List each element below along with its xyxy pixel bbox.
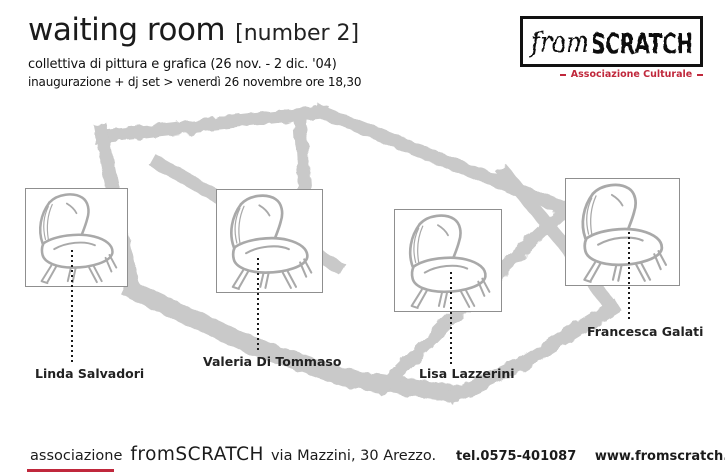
title-number: [number 2] (235, 21, 359, 46)
footer-phone: tel.0575-401087 (456, 449, 576, 464)
artist-label-4: Francesca Galati (587, 324, 703, 339)
chair-frame-1 (25, 188, 128, 287)
chair-icon (395, 210, 501, 311)
opening-info: inaugurazione + dj set > venerdì 26 nove… (28, 75, 361, 89)
logo-text-scratch: SCRATCH (591, 27, 693, 60)
exhibition-poster: waiting room [number 2] collettiva di pi… (0, 0, 725, 475)
footer-street: via Mazzini, 30 Arezzo. (271, 448, 436, 464)
page-title: waiting room (28, 12, 225, 48)
tagline-text: Associazione Culturale (571, 69, 692, 80)
footer-red-line (27, 469, 114, 472)
leader-line-4 (628, 232, 630, 322)
logo-tagline: Associazione Culturale (560, 69, 703, 80)
artist-label-3: Lisa Lazzerini (419, 366, 515, 381)
logo-wordmark: from SCRATCH (523, 19, 700, 64)
chair-icon (217, 190, 322, 292)
artist-label-2: Valeria Di Tommaso (203, 354, 341, 369)
footer-address: associazione fromSCRATCH via Mazzini, 30… (30, 444, 436, 465)
footer-brand: fromSCRATCH (130, 444, 264, 465)
leader-line-1 (71, 250, 73, 364)
leader-line-2 (257, 258, 259, 352)
footer-contacts: tel.0575-401087 www.fromscratch.it (456, 449, 725, 464)
chair-frame-2 (216, 189, 323, 293)
tagline-dash-right (697, 74, 703, 76)
footer-website: www.fromscratch.it (595, 449, 725, 464)
fromscratch-logo: from SCRATCH Associazione Culturale (520, 16, 703, 67)
logo-frame: from SCRATCH (520, 16, 703, 67)
logo-text-from: from (529, 25, 589, 59)
footer-org: associazione (30, 448, 122, 464)
title-block: waiting room [number 2] collettiva di pi… (28, 12, 361, 89)
subtitle: collettiva di pittura e grafica (26 nov.… (28, 57, 361, 72)
leader-line-3 (450, 272, 452, 364)
chair-icon (26, 189, 127, 286)
artist-label-1: Linda Salvadori (35, 366, 144, 381)
chair-icon (566, 179, 679, 285)
chair-frame-4 (565, 178, 680, 286)
chair-frame-3 (394, 209, 502, 312)
tagline-dash-left (560, 74, 566, 76)
